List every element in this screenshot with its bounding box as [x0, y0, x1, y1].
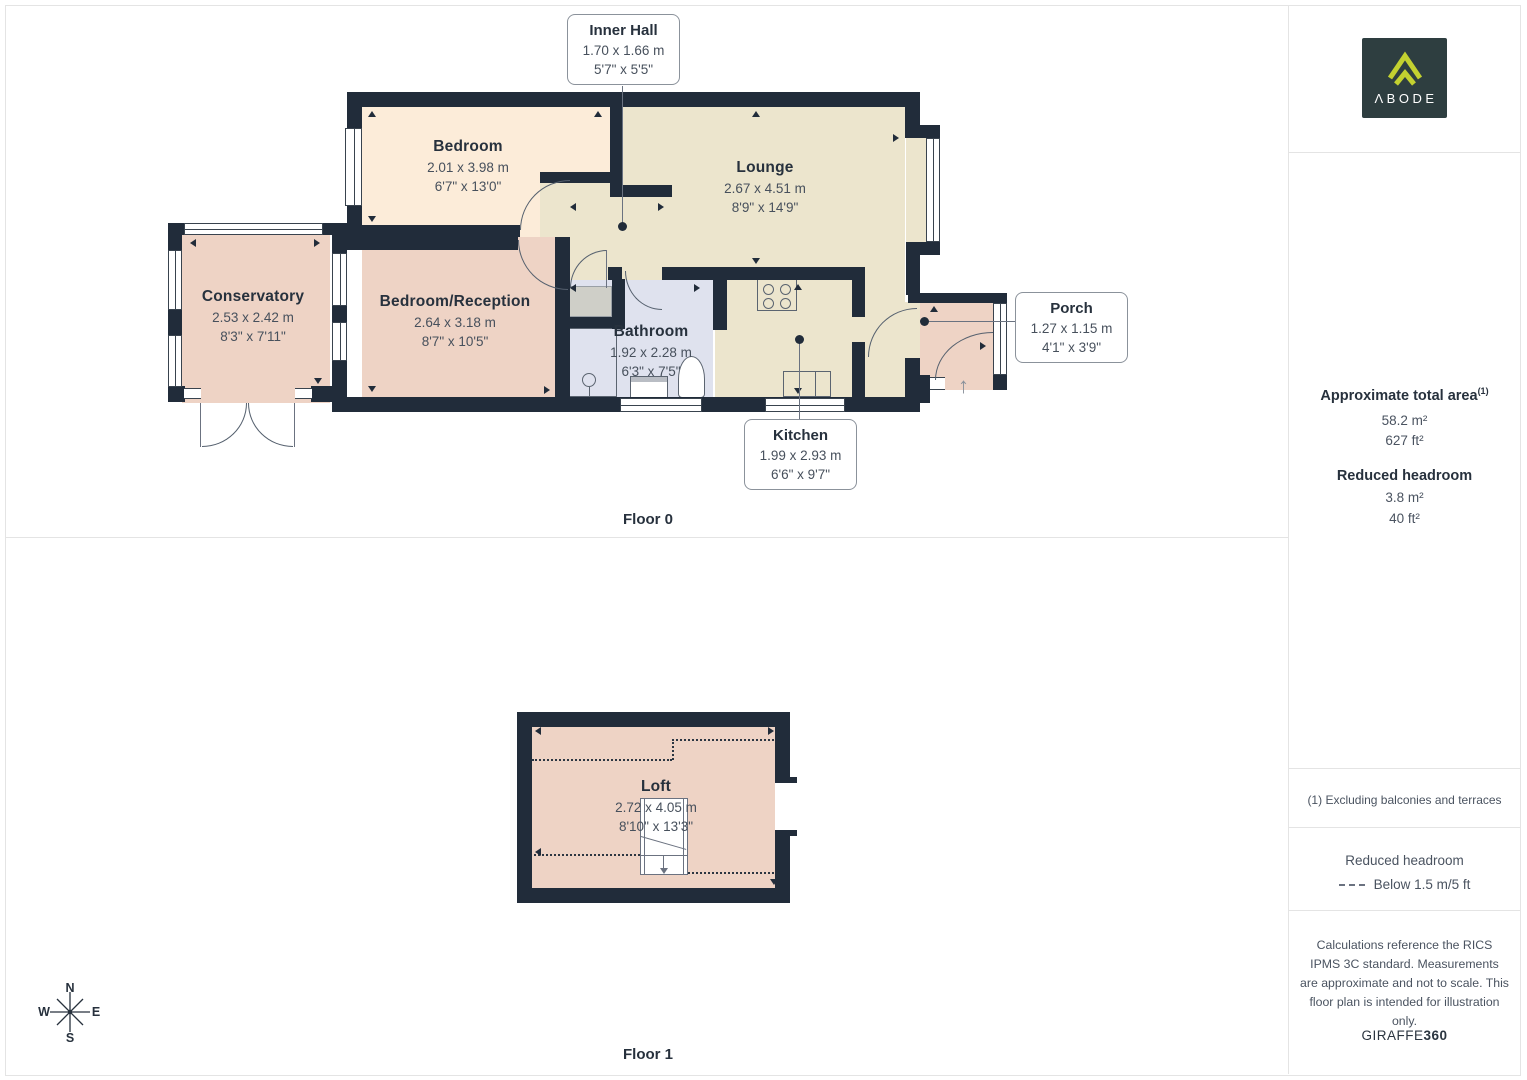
wall — [775, 712, 790, 783]
sidebar-section-divider — [1289, 152, 1520, 153]
window — [620, 398, 702, 412]
measure-arrow-icon — [368, 111, 376, 117]
measure-arrow-icon — [770, 879, 778, 885]
wall — [852, 280, 865, 317]
burner-icon — [780, 298, 791, 309]
measure-arrow-icon — [930, 306, 938, 312]
measure-arrow-icon — [314, 239, 320, 247]
total-area-ft2: 627 ft² — [1289, 433, 1520, 448]
reduced-headroom-ft2: 40 ft² — [1289, 511, 1520, 526]
measure-arrow-icon — [794, 388, 802, 394]
callout-line — [799, 341, 800, 420]
measure-arrow-icon — [544, 386, 550, 394]
room-dim-ft: 6'7" x 13'0" — [435, 179, 502, 194]
room-dim-m: 1.70 x 1.66 m — [583, 43, 665, 58]
measure-arrow-icon — [893, 134, 899, 142]
room-dim-ft: 4'1" x 3'9" — [1042, 340, 1101, 355]
measure-arrow-icon — [752, 258, 760, 264]
door-arc — [248, 403, 293, 447]
measure-arrow-icon — [368, 216, 376, 222]
room-name: Inner Hall — [572, 20, 675, 41]
callout-porch: Porch 1.27 x 1.15 m 4'1" x 3'9" — [1015, 292, 1128, 363]
door-sill — [295, 388, 312, 399]
room-dim-m: 2.64 x 3.18 m — [414, 315, 496, 330]
total-area-title: Approximate total area(1) — [1289, 386, 1520, 404]
burner-icon — [763, 298, 774, 309]
legend-dashed-line-icon — [1339, 884, 1365, 886]
door-gap — [852, 317, 865, 342]
wall — [917, 375, 930, 403]
headroom-dashed-line — [672, 739, 782, 741]
wall — [565, 317, 612, 328]
window — [168, 335, 182, 387]
callout-kitchen: Kitchen 1.99 x 2.93 m 6'6" x 9'7" — [744, 419, 857, 490]
sidebar-section-divider — [1289, 768, 1520, 769]
measure-arrow-icon — [368, 386, 376, 392]
room-name: Bathroom — [610, 321, 692, 343]
burner-icon — [763, 284, 774, 295]
window — [993, 303, 1007, 375]
floor1-label: Floor 1 — [623, 1046, 673, 1063]
wall — [347, 237, 518, 250]
legend-row: Below 1.5 m/5 ft — [1289, 877, 1520, 892]
compass-south: S — [66, 1031, 74, 1045]
room-dim-ft: 8'10" x 13'3" — [619, 819, 693, 834]
shower-drain-icon — [582, 373, 596, 387]
room-label-bedroom: Bedroom 2.01 x 3.98 m 6'7" x 13'0" — [427, 136, 509, 196]
compass-west: W — [38, 1005, 50, 1019]
wall — [852, 342, 865, 397]
callout-dot — [795, 335, 804, 344]
room-name: Kitchen — [749, 425, 852, 446]
sink-divider — [815, 372, 816, 396]
floorplan-page: ↑ Bedroom 2.01 x 3.98 m 6'7" x 13'0" Lou… — [0, 0, 1527, 1080]
burner-icon — [780, 284, 791, 295]
room-dim-m: 1.92 x 2.28 m — [610, 345, 692, 360]
total-area-title-text: Approximate total area — [1320, 388, 1477, 404]
door-leaf — [606, 250, 607, 288]
brand-name-regular: GIRAFFE — [1361, 1028, 1423, 1043]
abode-logo: ΛBODE — [1362, 38, 1447, 118]
window — [332, 322, 347, 361]
wall — [311, 386, 332, 402]
wall — [662, 267, 865, 280]
wall — [775, 830, 790, 903]
room-dim-ft: 8'7" x 10'5" — [422, 334, 489, 349]
room-name: Bedroom/Reception — [380, 291, 531, 313]
room-dim-ft: 8'3" x 7'11" — [220, 329, 286, 344]
window — [345, 128, 362, 206]
room-label-loft: Loft 2.72 x 4.05 m 8'10" x 13'3" — [615, 776, 697, 836]
wall — [347, 225, 520, 237]
wall — [517, 712, 532, 903]
sidebar-divider — [1288, 6, 1289, 1074]
room-label-bedroom-reception: Bedroom/Reception 2.64 x 3.18 m 8'7" x 1… — [380, 291, 531, 351]
compass-north: N — [65, 981, 74, 995]
wall — [775, 777, 797, 783]
room-label-lounge: Lounge 2.67 x 4.51 m 8'9" x 14'9" — [724, 157, 806, 217]
wall — [906, 125, 940, 138]
room-dim-ft: 5'7" x 5'5" — [594, 62, 653, 77]
measure-arrow-icon — [535, 848, 541, 856]
measure-arrow-icon — [594, 111, 602, 117]
entrance-arrow-icon: ↑ — [958, 375, 969, 397]
measure-arrow-icon — [570, 203, 576, 211]
room-dim-ft: 6'3" x 7'5" — [621, 364, 680, 379]
room-name: Conservatory — [202, 286, 304, 308]
wall — [623, 185, 672, 197]
room-dim-m: 2.67 x 4.51 m — [724, 181, 806, 196]
kitchen-sink-icon — [783, 371, 831, 397]
room-dim-m: 1.99 x 2.93 m — [760, 448, 842, 463]
headroom-dashed-line — [688, 872, 782, 874]
sidebar-section-divider — [1289, 827, 1520, 828]
room-name: Loft — [615, 776, 697, 798]
room-dim-m: 2.01 x 3.98 m — [427, 160, 509, 175]
window — [765, 398, 845, 412]
wall — [993, 375, 1007, 390]
callout-dot — [920, 317, 929, 326]
wall — [517, 888, 790, 903]
measure-arrow-icon — [314, 378, 322, 384]
wall — [906, 242, 940, 255]
room-dim-ft: 6'6" x 9'7" — [771, 467, 830, 482]
door-sill — [184, 388, 201, 399]
shower-stem — [589, 387, 590, 397]
reduced-headroom-m2: 3.8 m² — [1289, 490, 1520, 505]
headroom-dashed-line — [672, 739, 674, 760]
wall — [775, 830, 797, 836]
door-arc — [202, 403, 247, 447]
window-bay — [906, 138, 926, 242]
callout-inner-hall: Inner Hall 1.70 x 1.66 m 5'7" x 5'5" — [567, 14, 680, 85]
floor-divider — [6, 537, 1288, 538]
total-area-footnote-marker: (1) — [1478, 386, 1489, 396]
abode-logo-mark-icon — [1383, 50, 1427, 86]
measure-arrow-icon — [190, 239, 196, 247]
window — [926, 138, 940, 242]
legend-item-text: Below 1.5 m/5 ft — [1374, 877, 1471, 892]
callout-line — [622, 86, 623, 227]
brand-name-bold: 360 — [1423, 1028, 1447, 1043]
room-dim-ft: 8'9" x 14'9" — [732, 200, 799, 215]
headroom-dashed-line — [530, 854, 640, 856]
wall — [713, 280, 727, 330]
wall — [517, 712, 790, 727]
measure-arrow-icon — [768, 727, 774, 735]
stair-down-arrow-icon — [660, 868, 668, 874]
abode-logo-text: ΛBODE — [1371, 91, 1437, 106]
room-name: Bedroom — [427, 136, 509, 158]
room-kitchen — [715, 330, 727, 397]
measure-arrow-icon — [535, 727, 541, 735]
measure-arrow-icon — [570, 284, 576, 292]
disclaimer-text: Calculations reference the RICS IPMS 3C … — [1300, 936, 1509, 1031]
room-name: Porch — [1020, 298, 1123, 319]
stove-icon — [757, 279, 797, 311]
room-dim-m: 1.27 x 1.15 m — [1031, 321, 1113, 336]
reduced-headroom-title: Reduced headroom — [1289, 468, 1520, 484]
room-dim-m: 2.72 x 4.05 m — [615, 800, 697, 815]
callout-line — [929, 321, 1016, 322]
door-leaf — [200, 403, 201, 447]
measure-arrow-icon — [694, 284, 700, 292]
room-label-conservatory: Conservatory 2.53 x 2.42 m 8'3" x 7'11" — [202, 286, 304, 346]
floor0-label: Floor 0 — [623, 511, 673, 528]
measure-arrow-icon — [658, 203, 664, 211]
callout-dot — [618, 222, 627, 231]
door-leaf — [294, 403, 295, 447]
compass-east: E — [92, 1005, 100, 1019]
wall — [540, 172, 610, 183]
wall — [908, 293, 1007, 303]
sidebar-section-divider — [1289, 910, 1520, 911]
legend-title: Reduced headroom — [1289, 853, 1520, 868]
room-dim-m: 2.53 x 2.42 m — [212, 310, 294, 325]
measure-arrow-icon — [794, 284, 802, 290]
wall — [347, 92, 920, 107]
giraffe360-brand: GIRAFFE360 — [1289, 1028, 1520, 1043]
wall — [906, 255, 920, 295]
window — [168, 250, 182, 310]
wall — [168, 386, 185, 402]
window — [332, 253, 347, 306]
room-name: Lounge — [724, 157, 806, 179]
measure-arrow-icon — [980, 342, 986, 350]
stair-step — [641, 855, 687, 856]
wall — [332, 223, 347, 412]
footnote: (1) Excluding balconies and terraces — [1289, 793, 1520, 807]
window — [184, 223, 323, 235]
total-area-m2: 58.2 m² — [1289, 413, 1520, 428]
headroom-dashed-line — [532, 759, 672, 761]
measure-arrow-icon — [752, 111, 760, 117]
room-label-bathroom: Bathroom 1.92 x 2.28 m 6'3" x 7'5" — [610, 321, 692, 381]
